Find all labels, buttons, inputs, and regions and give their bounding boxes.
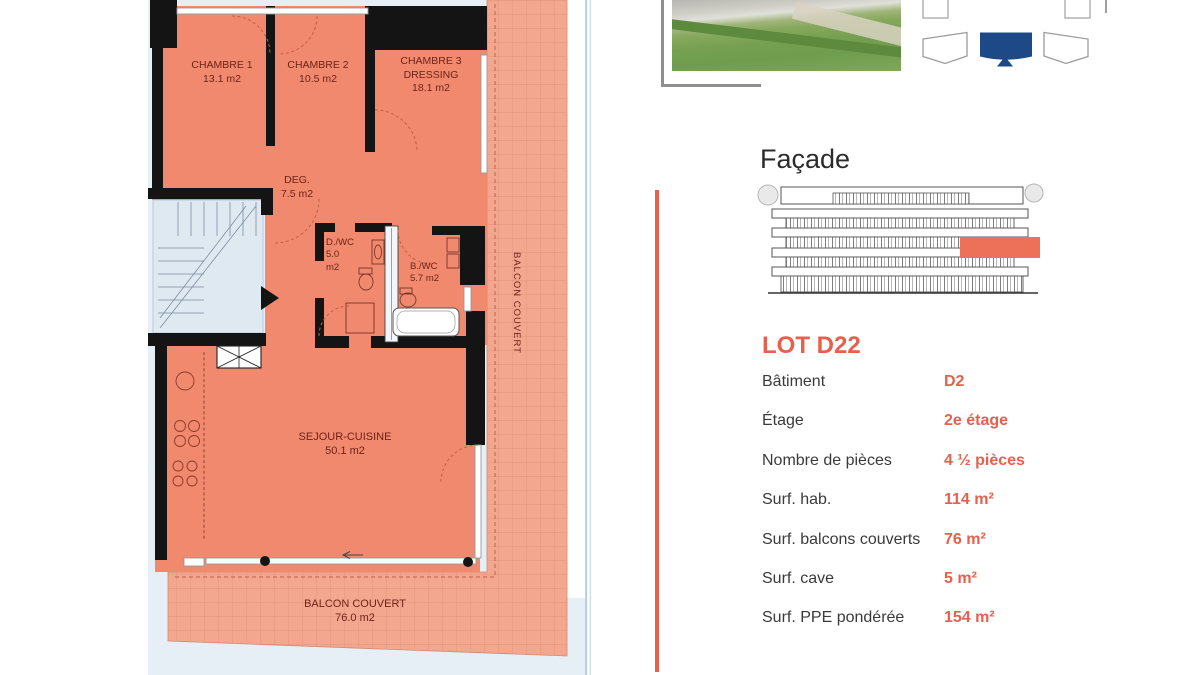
tree-icon [1025, 184, 1043, 202]
lot-row-label: Surf. hab. [762, 491, 944, 509]
lot-row-surf-hab: Surf. hab. 114 m² [762, 491, 1072, 530]
lot-row-label: Surf. PPE pondérée [762, 609, 944, 627]
room-label-chambre1: CHAMBRE 113.1 m2 [166, 59, 278, 86]
lot-row-label: Étage [762, 412, 944, 430]
floor-plan-drawing [148, 0, 592, 675]
lot-row-value: 2e étage [944, 412, 1008, 430]
building-footprint-right[interactable] [1044, 33, 1088, 64]
lot-row-value: 114 m² [944, 491, 994, 509]
lot-row-batiment: Bâtiment D2 [762, 373, 1072, 412]
room-label-balcon-side: BALCON COUVERT [511, 252, 522, 354]
lot-row-label: Nombre de pièces [762, 452, 944, 470]
lot-row-pieces: Nombre de pièces 4 ½ pièces [762, 452, 1072, 491]
building-footprint-left[interactable] [923, 33, 967, 64]
room-label-chambre3: CHAMBRE 3DRESSING18.1 m2 [383, 55, 479, 96]
lot-row-surf-cave: Surf. cave 5 m² [762, 570, 1072, 609]
room-label-degagement: DEG.7.5 m2 [268, 174, 326, 201]
lot-row-surf-balcons: Surf. balcons couverts 76 m² [762, 531, 1072, 570]
lot-row-value: 154 m² [944, 609, 995, 627]
room-label-balcon-bottom: BALCON COUVERT76.0 m2 [276, 597, 434, 626]
room-label-douche-wc: D./WC5.0m2 [326, 237, 366, 274]
lot-details-section: LOT D22 Bâtiment D2 Étage 2e étage Nombr… [762, 333, 1072, 649]
lot-row-surf-ppe: Surf. PPE pondérée 154 m² [762, 609, 1072, 648]
lot-row-etage: Étage 2e étage [762, 412, 1072, 451]
facade-heading: Façade [760, 144, 850, 175]
lot-row-label: Surf. balcons couverts [762, 531, 944, 549]
building-footprint-top-right[interactable] [1065, 0, 1090, 18]
lot-row-label: Bâtiment [762, 373, 944, 391]
building-footprint-top-left[interactable] [923, 0, 948, 18]
tree-icon [758, 185, 778, 205]
room-label-sejour: SEJOUR-CUISINE50.1 m2 [278, 430, 412, 459]
building-photo [672, 0, 901, 71]
accent-divider-line [655, 190, 659, 672]
building-footprint-selected[interactable] [980, 33, 1032, 60]
facade-elevation-drawing [755, 182, 1050, 300]
lot-row-value: 5 m² [944, 570, 977, 588]
lot-row-value: 76 m² [944, 531, 986, 549]
lot-row-value: D2 [944, 373, 964, 391]
facade-lot-highlight [960, 237, 1040, 258]
room-label-chambre2: CHAMBRE 210.5 m2 [272, 59, 364, 86]
site-building-selector [905, 0, 1110, 90]
lot-row-value: 4 ½ pièces [944, 452, 1025, 470]
lot-row-label: Surf. cave [762, 570, 944, 588]
room-label-bain-wc: B./WC5.7 m2 [410, 261, 462, 286]
lot-title: LOT D22 [762, 333, 1072, 359]
floor-plan-panel: CHAMBRE 113.1 m2 CHAMBRE 210.5 m2 CHAMBR… [148, 0, 592, 675]
